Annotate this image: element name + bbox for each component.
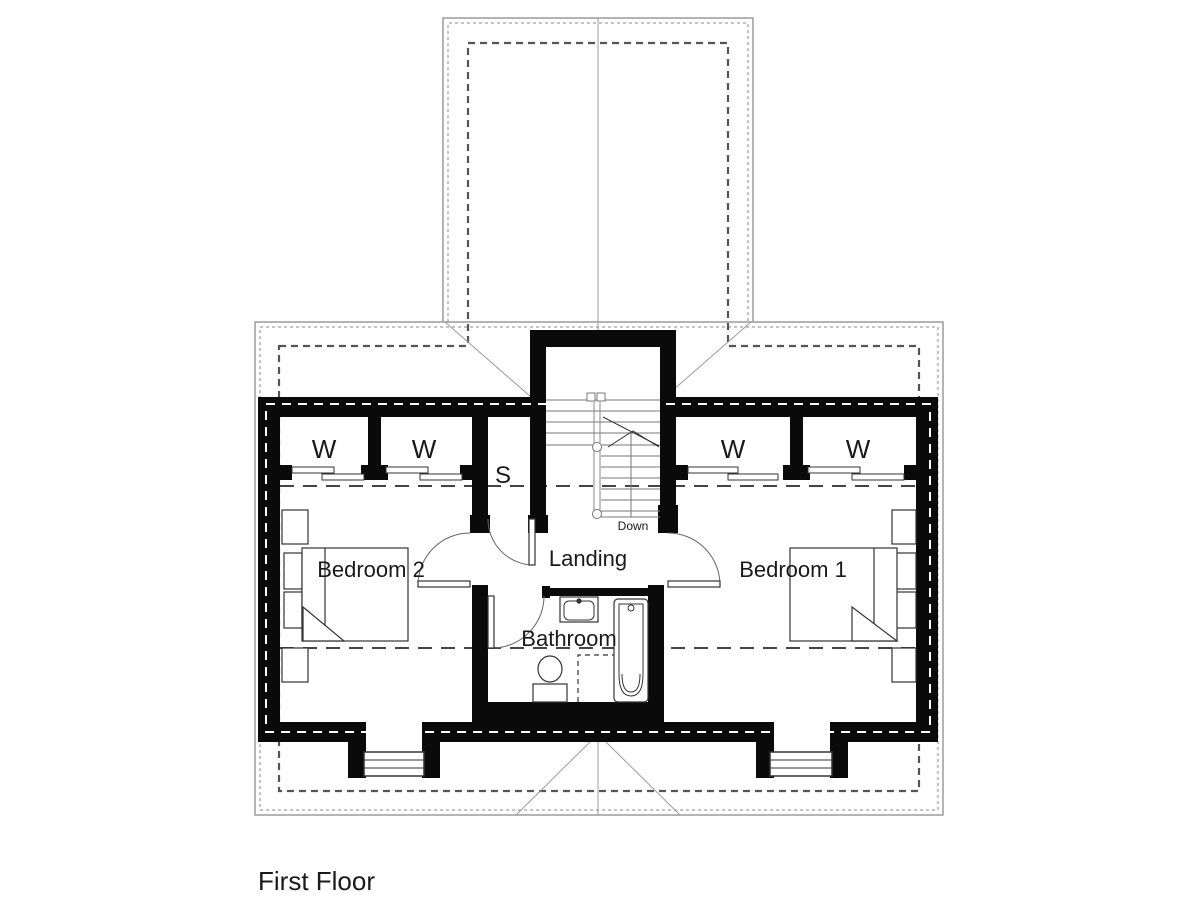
wall-top-right [676, 397, 938, 417]
wall-stairwell-right [660, 330, 676, 533]
jamb-bathroom-door [542, 586, 550, 598]
wall-stairwell-top [530, 330, 676, 347]
sink-basin [564, 601, 594, 620]
stair-newel-post-1 [587, 393, 595, 401]
bedroom2-furniture [282, 510, 408, 682]
bedroom2-label: Bedroom 2 [317, 557, 425, 582]
roof-hip-left [445, 322, 531, 397]
wardrobe1-panel-a [292, 467, 334, 473]
wall-stairwell-left [530, 330, 546, 533]
stair-newel-post-2 [597, 393, 605, 401]
wall-bedroom2-upper [472, 412, 488, 533]
wardrobe2-panel-b [420, 474, 462, 480]
wall-bedroom2-lower [472, 585, 488, 722]
roof-hip-right [665, 322, 751, 397]
bedroom1-door-swing [668, 533, 720, 585]
wardrobe1-panel-b [322, 474, 364, 480]
stair-newel-bottom [593, 510, 602, 519]
stairs-down-label: Down [618, 519, 649, 533]
bedroom1-door-leaf [668, 581, 720, 587]
bedroom2-door-swing [418, 533, 470, 585]
wardrobe3-label: W [721, 434, 746, 464]
jamb-closet-w4 [904, 465, 916, 480]
bedside-unit [282, 510, 308, 544]
wardrobe1-label: W [312, 434, 337, 464]
roof-valley-left [516, 742, 590, 815]
window-left [364, 752, 424, 776]
wardrobe4-panel-b [852, 474, 904, 480]
floor-plan-page: W W W W S Down Landing Bedroom 2 Bedroom… [0, 0, 1200, 900]
bedside-unit [892, 510, 916, 544]
floor-title: First Floor [258, 866, 375, 896]
labels: W W W W S Down Landing Bedroom 2 Bedroom… [258, 434, 871, 896]
pillow [284, 553, 302, 589]
pillow [896, 553, 916, 589]
wall-bathroom-top [544, 588, 664, 596]
bedside-unit [282, 648, 308, 682]
roof-valley-right [606, 742, 680, 815]
wardrobe3-panel-b [728, 474, 778, 480]
bedroom1-furniture [790, 510, 916, 682]
wall-closet-partition-right [790, 412, 803, 468]
bathroom-label: Bathroom [521, 626, 616, 651]
jamb-closet-w3 [676, 465, 688, 480]
bathroom-door-leaf [488, 596, 494, 648]
pillow [284, 592, 302, 628]
jamb-stairwell-right [658, 505, 678, 533]
wall-closet-partition-left [368, 412, 381, 468]
bedside-unit [892, 648, 916, 682]
storage-door-leaf [529, 519, 535, 565]
stair-winder-treads [546, 400, 660, 445]
wall-bathroom-right [648, 585, 664, 722]
sink-tap [577, 599, 581, 603]
wardrobe3-panel-a [688, 467, 738, 473]
jamb-closet-partition-left [361, 465, 388, 480]
wall-right [916, 397, 938, 742]
wardrobe4-panel-a [808, 467, 860, 473]
storage-label: S [495, 462, 511, 489]
wardrobe2-label: W [412, 434, 437, 464]
bedroom2-door-leaf [418, 581, 470, 587]
stair-handrail [594, 402, 600, 514]
jamb-closet-partition-right [783, 465, 810, 480]
window-right [770, 752, 832, 776]
staircase [546, 393, 660, 519]
stair-newel-mid [593, 443, 602, 452]
pillow [896, 592, 916, 628]
floor-plan-drawing: W W W W S Down Landing Bedroom 2 Bedroom… [0, 0, 1200, 900]
toilet-cistern [533, 684, 567, 702]
jamb-bedroom2-door [470, 515, 490, 533]
toilet-bowl [538, 656, 562, 682]
wardrobe2-panel-a [386, 467, 428, 473]
wall-left [258, 397, 280, 742]
wall-bathroom-bottom [475, 702, 664, 725]
bedroom1-label: Bedroom 1 [739, 557, 847, 582]
wall-top-left [258, 397, 530, 417]
landing-label: Landing [549, 546, 627, 571]
shower-dashed-outline [578, 655, 618, 702]
storage-door-swing [488, 519, 532, 565]
wardrobe4-label: W [846, 434, 871, 464]
jamb-closet-w1 [280, 465, 292, 480]
